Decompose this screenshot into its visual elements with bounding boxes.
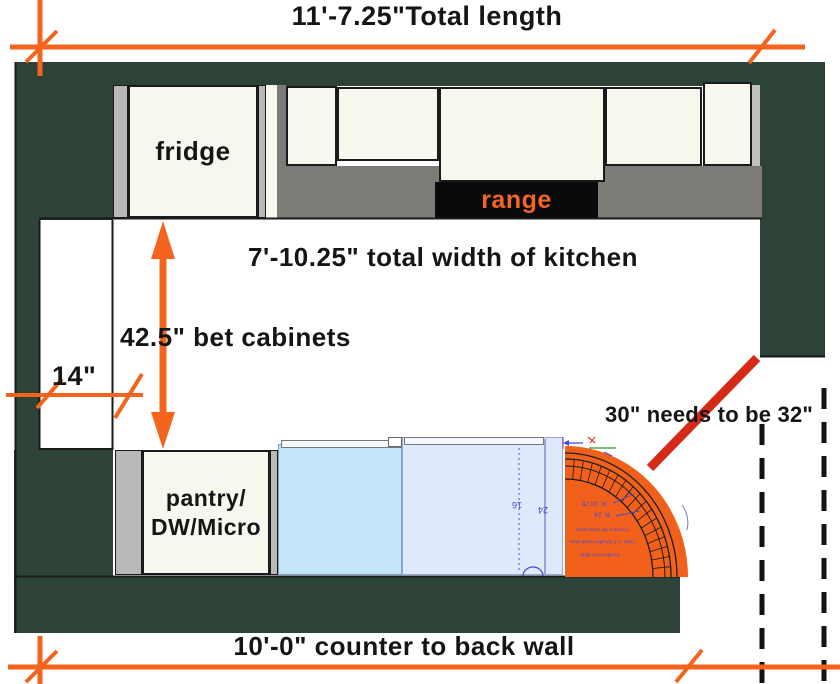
dashed-projection-lines xyxy=(762,388,824,684)
counter-to-back-wall-label: 10'-0" counter to back wall xyxy=(233,631,574,662)
left-clearance-label: 14" xyxy=(52,361,96,392)
island-width-cad-label: 24 xyxy=(538,505,548,515)
fan-note-line3: Double Doors @36 xyxy=(580,553,619,558)
island-depth-cad-label: 16 xyxy=(512,500,522,510)
fan-note-line1: Access to full range space xyxy=(575,528,629,533)
fan-blue-arc xyxy=(682,505,688,530)
kitchen-width-label: 7'-10.25" total width of kitchen xyxy=(248,242,638,273)
total-length-label: 11'-7.25"Total length xyxy=(292,1,563,32)
kitchen-floor-plan: fridge range pantry/ DW/Micro xyxy=(0,0,840,684)
fan-note-line2: holds ~1.5 (smaller) stand mixer xyxy=(569,540,635,545)
door-clearance-label: 30" needs to be 32" xyxy=(605,402,813,428)
fan-radius-inner-label: R. 24 xyxy=(594,511,610,518)
fan-radius-outer-label: R. 24.75 xyxy=(582,500,607,507)
between-cabinets-label: 42.5" bet cabinets xyxy=(120,322,351,353)
